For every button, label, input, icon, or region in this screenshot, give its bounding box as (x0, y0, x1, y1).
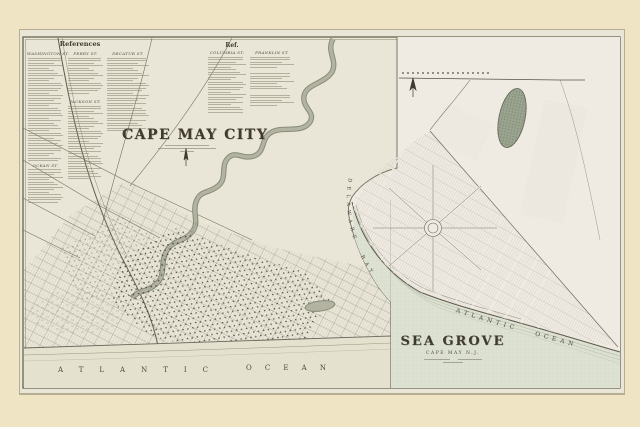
references-title: References (52, 40, 108, 48)
illegible-text-lines (106, 58, 150, 132)
title-credit-line (458, 359, 482, 360)
reference-column-3: DECATUR ST. (106, 51, 150, 133)
title-credit-line (443, 362, 463, 363)
sea-grove-subtitle: CAPE MAY N.J. (398, 351, 508, 356)
cape-may-city-title: CAPE MAY CITY (122, 127, 252, 143)
reference-column-1: WASHINGTON ST. OCEAN ST. (27, 51, 64, 204)
title-credit-line (180, 151, 194, 152)
column-header: COLUMBIA ST. (207, 50, 247, 55)
illegible-text-lines (67, 58, 104, 94)
ref2-column-2: FRANKLIN ST. (249, 50, 295, 107)
sea-grove-title-block: SEA GROVE CAPE MAY N.J. (398, 334, 508, 363)
column-subheader: OCEAN ST. (27, 163, 64, 168)
title-credit-line (158, 148, 216, 149)
illegible-text-lines (67, 106, 104, 180)
column-header: PERRY ST. (67, 51, 104, 56)
ref2-title: Ref. (212, 42, 252, 49)
ref2-column-1: COLUMBIA ST. (207, 50, 247, 114)
column-header: DECATUR ST. (106, 51, 150, 56)
road-label-illegible (402, 72, 490, 74)
illegible-text-lines (249, 95, 295, 106)
illegible-text-lines (27, 58, 64, 162)
column-header: FRANKLIN ST. (249, 50, 295, 55)
sea-grove-title: SEA GROVE (398, 334, 508, 349)
illegible-text-lines (207, 57, 247, 113)
column-subheader: JACKSON ST. (67, 99, 104, 104)
title-credit-line (165, 145, 209, 146)
illegible-text-lines (27, 169, 64, 203)
title-credit-line (424, 359, 450, 360)
illegible-text-lines (249, 73, 295, 89)
antique-map-scan: ATLANTIC OCEAN (0, 0, 640, 427)
illegible-text-lines (249, 57, 295, 68)
column-header: WASHINGTON ST. (27, 51, 64, 56)
reference-column-2: PERRY ST. JACKSON ST. (67, 51, 104, 181)
cape-may-city-title-block: CAPE MAY CITY (122, 127, 252, 152)
